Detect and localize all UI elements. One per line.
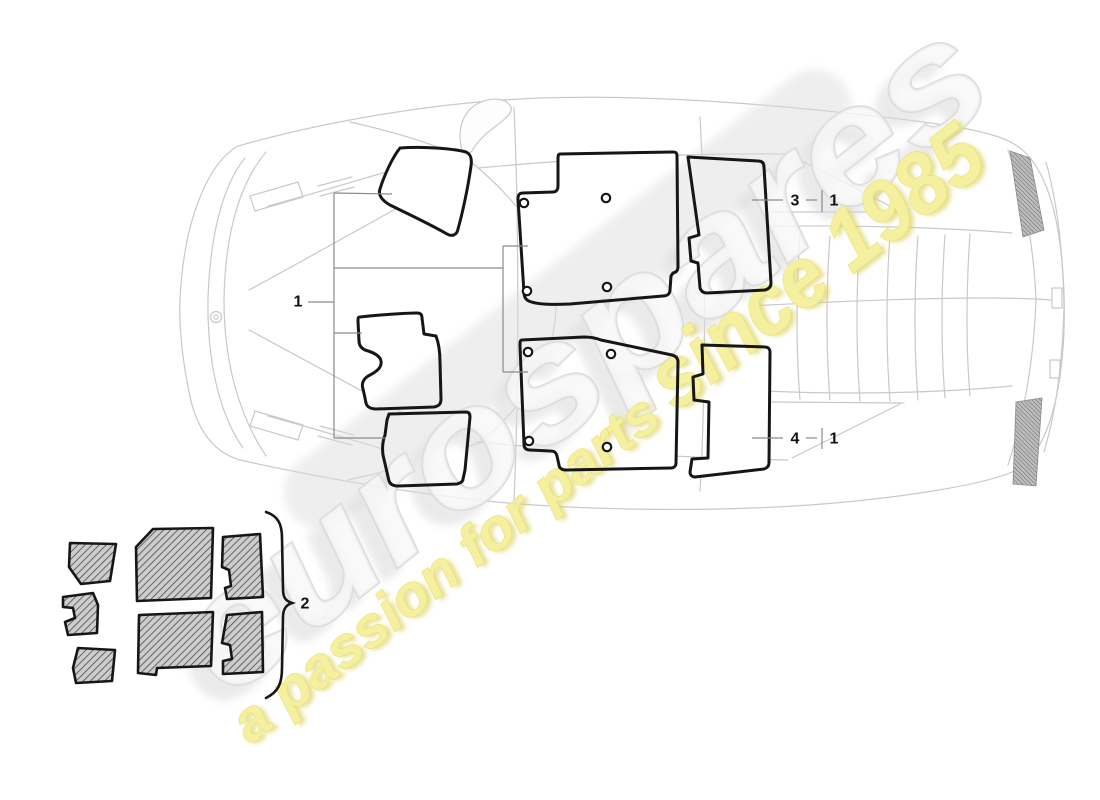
headlight-left xyxy=(250,182,303,211)
callout-label-4[interactable]: 4 xyxy=(791,431,800,448)
callout-label-3[interactable]: 3 xyxy=(791,193,800,210)
callout-label-3-ref[interactable]: 1 xyxy=(830,193,839,210)
watermark-brand: eurospares xyxy=(139,0,1021,727)
callout-label-2[interactable]: 2 xyxy=(301,596,310,613)
callout-group2: 2 xyxy=(301,596,310,613)
front-nose-line xyxy=(224,152,266,456)
rear-detail-1 xyxy=(1052,288,1062,308)
badge-center xyxy=(214,315,218,319)
rear-grille-lower xyxy=(1013,398,1042,486)
mat-piece-mid-left[interactable] xyxy=(63,593,98,635)
callout-label-1[interactable]: 1 xyxy=(294,294,303,311)
engine-lid-bottom2 xyxy=(745,386,1012,393)
buttress-right xyxy=(792,404,900,458)
headlight-right xyxy=(250,411,303,440)
callout-label-4-ref[interactable]: 1 xyxy=(830,431,839,448)
mat-piece-side-lower[interactable] xyxy=(222,612,263,674)
lamborghini-badge xyxy=(211,312,222,323)
mat-piece-main-lower[interactable] xyxy=(138,612,213,675)
side-mirror xyxy=(460,99,511,153)
mat-piece-rear-left[interactable] xyxy=(73,648,115,683)
mat-piece-side-upper[interactable] xyxy=(222,534,263,599)
mat-piece-front-left[interactable] xyxy=(69,543,116,584)
engine-lid-bottom xyxy=(772,402,904,403)
floor-covering-parts-diagram: eurospares eurospares a passion for part… xyxy=(0,0,1100,800)
parts-diagram-page: eurospares eurospares a passion for part… xyxy=(0,0,1100,800)
mat-piece-main-upper[interactable] xyxy=(136,528,213,601)
rear-grille-upper xyxy=(1010,151,1044,237)
rear-detail-2 xyxy=(1050,360,1060,378)
rear-edge-line xyxy=(1044,162,1064,452)
